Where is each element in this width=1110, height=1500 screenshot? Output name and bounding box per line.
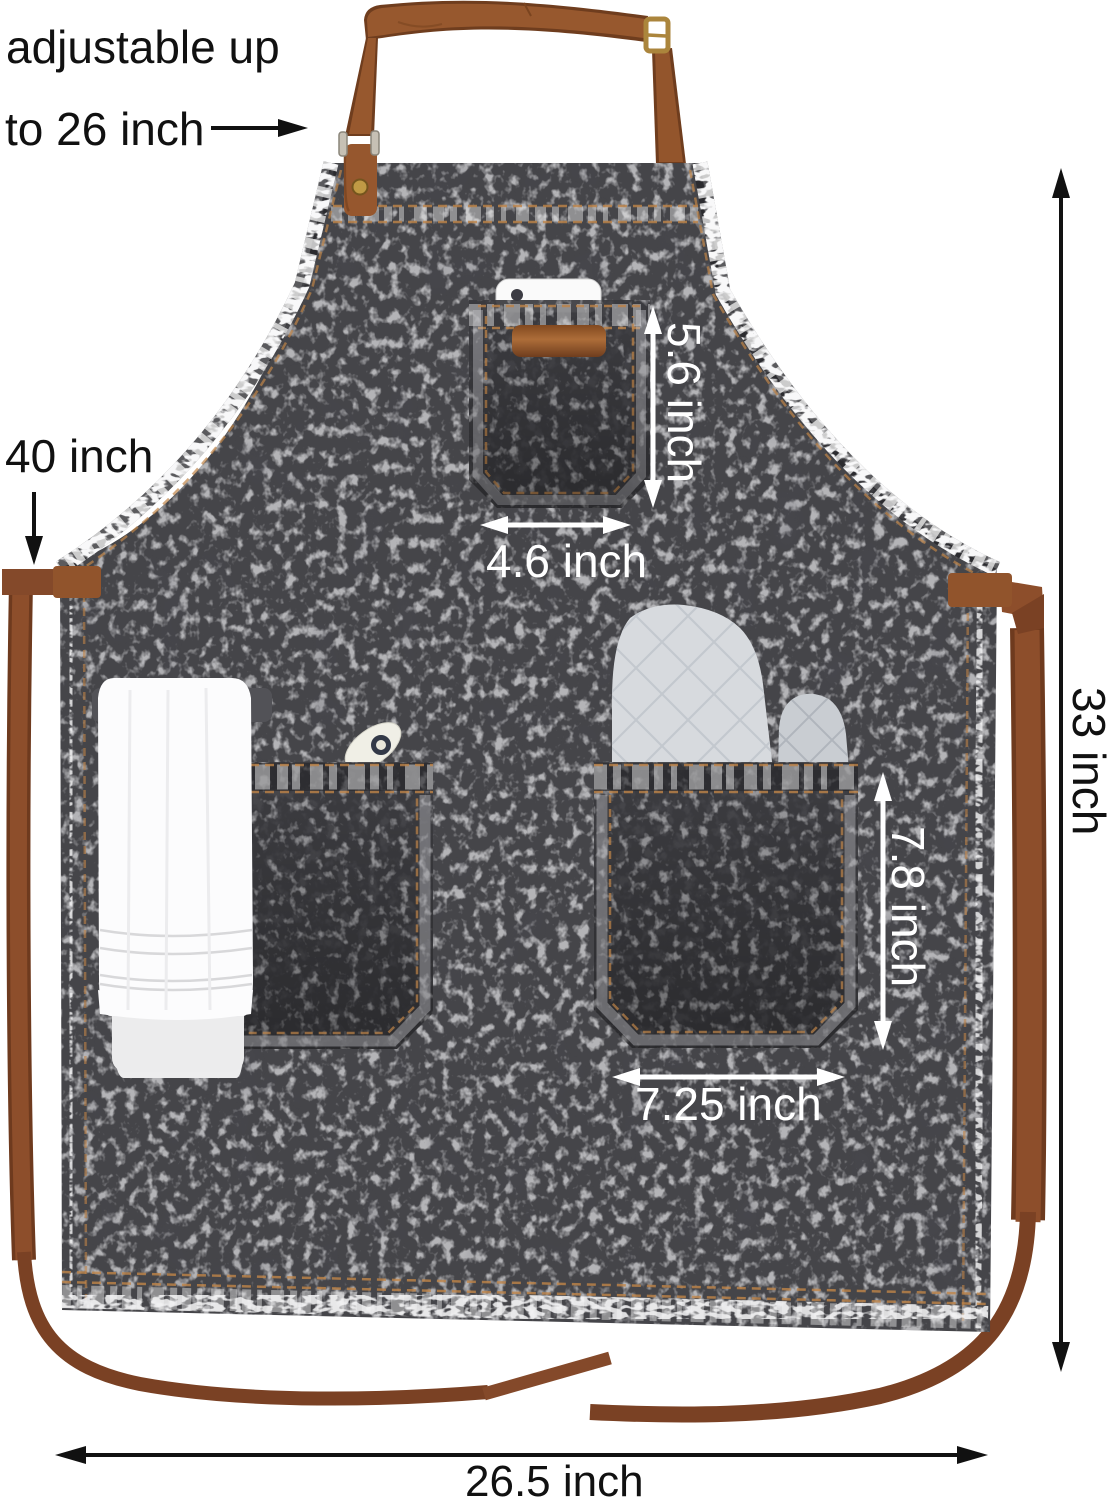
svg-text:40 inch: 40 inch xyxy=(5,430,153,482)
svg-text:7.25 inch: 7.25 inch xyxy=(635,1078,822,1130)
svg-text:4.6 inch: 4.6 inch xyxy=(486,535,647,587)
svg-text:26.5 inch: 26.5 inch xyxy=(465,1457,644,1500)
svg-text:33 inch: 33 inch xyxy=(1063,687,1110,835)
svg-text:adjustable up: adjustable up xyxy=(6,21,280,73)
svg-text:7.8 inch: 7.8 inch xyxy=(882,826,934,987)
svg-text:5.6 inch: 5.6 inch xyxy=(658,322,710,483)
svg-text:to 26 inch: to 26 inch xyxy=(5,103,204,155)
